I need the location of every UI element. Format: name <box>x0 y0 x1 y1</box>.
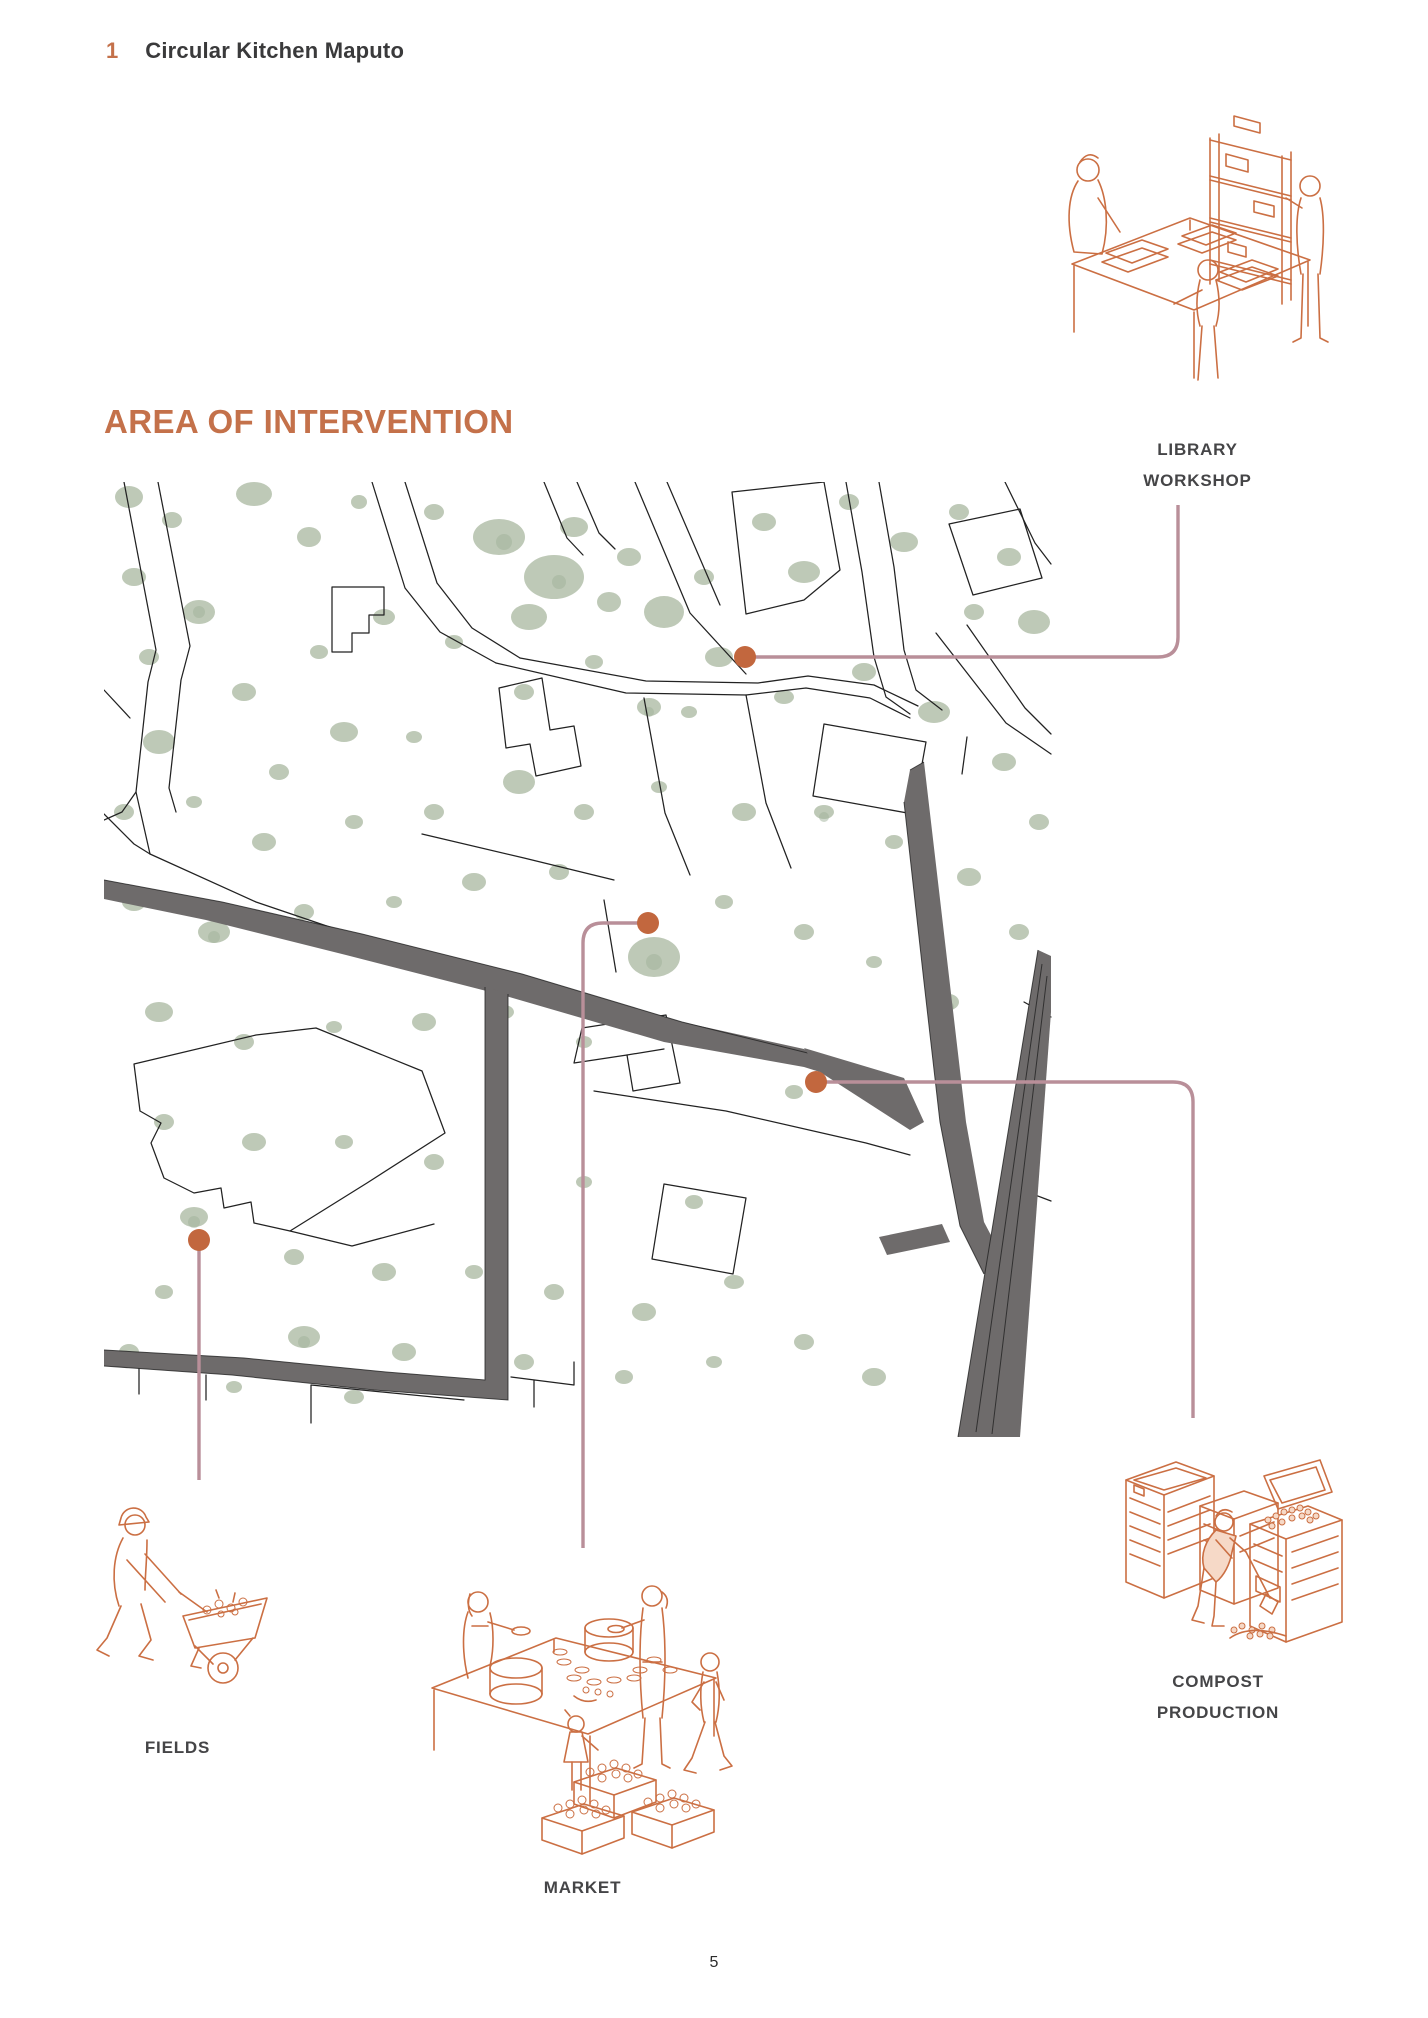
fields-illustration <box>95 1498 270 1708</box>
label-market-text: MARKET <box>500 1872 665 1903</box>
label-compost-line2: PRODUCTION <box>1118 1697 1318 1728</box>
market-illustration <box>424 1566 744 1856</box>
map-figure-ground-svg <box>104 482 1052 1437</box>
map-parcels-layer <box>104 482 1051 1423</box>
fields-icon <box>95 1498 270 1708</box>
label-compost-production: COMPOST PRODUCTION <box>1118 1666 1318 1728</box>
document-title: Circular Kitchen Maputo <box>145 38 404 64</box>
page-number: 5 <box>0 1954 1428 1972</box>
label-library-workshop-line1: LIBRARY <box>1095 434 1300 465</box>
page-header: 1 Circular Kitchen Maputo <box>106 38 404 64</box>
label-library-workshop-line2: WORKSHOP <box>1095 465 1300 496</box>
library-workshop-icon <box>1058 112 1330 404</box>
library-workshop-illustration <box>1058 112 1330 404</box>
compost-production-icon <box>1112 1440 1347 1665</box>
label-library-workshop: LIBRARY WORKSHOP <box>1095 434 1300 496</box>
section-title: AREA OF INTERVENTION <box>104 403 514 441</box>
label-fields-text: FIELDS <box>110 1732 245 1763</box>
compost-production-illustration <box>1112 1440 1347 1665</box>
map-roads-layer <box>104 762 1051 1437</box>
intervention-map <box>104 482 1052 1437</box>
chapter-number: 1 <box>106 38 118 64</box>
market-icon <box>424 1566 744 1856</box>
label-market: MARKET <box>500 1872 665 1903</box>
label-fields: FIELDS <box>110 1732 245 1763</box>
map-vegetation-layer <box>114 482 1050 1404</box>
document-page: 1 Circular Kitchen Maputo AREA OF INTERV… <box>0 0 1428 2018</box>
label-compost-line1: COMPOST <box>1118 1666 1318 1697</box>
